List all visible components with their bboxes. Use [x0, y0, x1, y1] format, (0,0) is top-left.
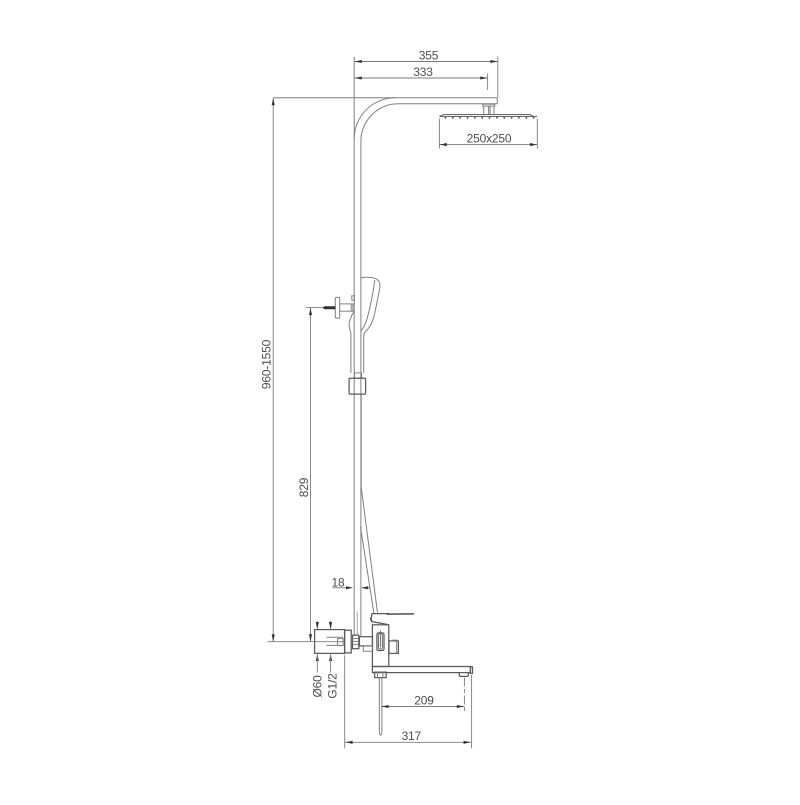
svg-text:960-1550: 960-1550: [259, 339, 273, 389]
svg-text:355: 355: [419, 49, 439, 63]
svg-text:18: 18: [332, 575, 345, 589]
svg-text:Ø60: Ø60: [311, 675, 325, 698]
svg-text:333: 333: [413, 65, 433, 79]
svg-text:G1/2: G1/2: [325, 673, 339, 699]
svg-text:209: 209: [414, 694, 434, 708]
svg-text:317: 317: [402, 729, 422, 743]
svg-text:250x250: 250x250: [467, 131, 512, 145]
svg-text:829: 829: [297, 477, 311, 497]
